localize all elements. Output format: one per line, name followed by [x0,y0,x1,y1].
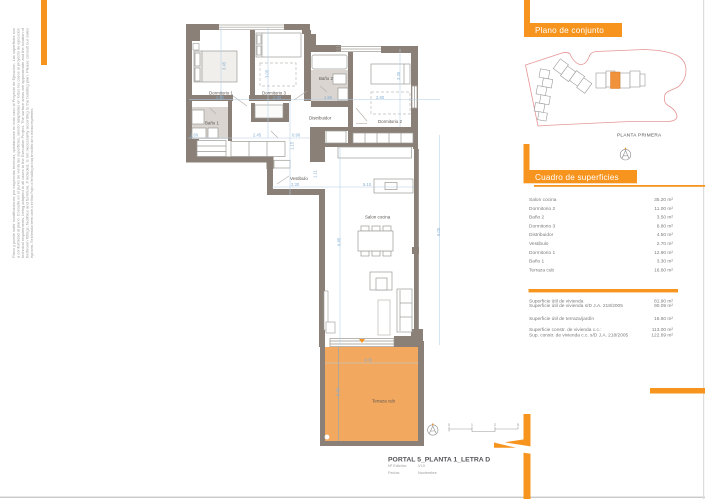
svg-text:2.45: 2.45 [253,133,262,138]
svg-text:1: 1 [471,423,473,427]
svg-text:6.85: 6.85 [337,237,342,246]
svg-text:Sup. constr. de vivienda c.c.: Sup. constr. de vivienda c.c. s/D J.A. 2… [529,333,629,339]
svg-text:Plano de conjunto: Plano de conjunto [535,26,604,35]
svg-text:3.50 m²: 3.50 m² [657,215,674,221]
svg-text:1.11: 1.11 [313,169,318,178]
svg-text:Vestibulo: Vestibulo [290,176,308,181]
svg-text:2.70 m²: 2.70 m² [657,241,674,247]
svg-text:5.80: 5.80 [336,387,341,396]
svg-text:90.09 m²: 90.09 m² [654,303,673,309]
svg-text:1.15: 1.15 [290,141,295,150]
svg-text:5.10: 5.10 [363,182,372,187]
svg-text:122.89 m²: 122.89 m² [651,333,673,339]
svg-text:legal norms. The information h: legal norms. The information herein come… [30,108,34,258]
svg-text:1.60: 1.60 [190,133,199,138]
svg-text:3.05: 3.05 [265,69,270,78]
svg-text:16.60 m²: 16.60 m² [654,267,673,273]
svg-text:Nº Edición:: Nº Edición: [388,463,407,468]
svg-text:16.60 m²: 16.60 m² [654,316,673,322]
svg-text:12.90 m²: 12.90 m² [654,250,673,256]
svg-text:Cuadro de superficies: Cuadro de superficies [535,173,619,182]
svg-text:PLANTA PRIMERA: PLANTA PRIMERA [617,133,662,138]
svg-text:Superficie útil de terraza/jar: Superficie útil de terraza/jardín [529,316,594,322]
svg-text:Noviembre: Noviembre [418,470,437,475]
svg-text:2.30: 2.30 [291,182,300,187]
svg-text:Fecha:: Fecha: [388,470,400,475]
svg-text:Terraza cub: Terraza cub [529,267,554,273]
svg-text:0: 0 [448,423,450,427]
svg-text:6.05: 6.05 [436,227,441,236]
svg-text:Dormitorio 1: Dormitorio 1 [529,250,555,256]
svg-text:Dormitorio 2: Dormitorio 2 [378,119,402,124]
svg-text:Distribuidor: Distribuidor [309,116,332,121]
svg-text:4.50 m²: 4.50 m² [657,232,674,238]
svg-text:2: 2 [494,423,496,427]
svg-text:Vestibulo: Vestibulo [529,241,549,247]
svg-text:8.80 m²: 8.80 m² [657,223,674,229]
svg-text:5: 5 [517,423,519,427]
svg-text:Superficie útil de vivienda s/: Superficie útil de vivienda s/D J.A. 218… [529,303,623,309]
svg-text:Baño 1: Baño 1 [205,121,219,126]
svg-text:Distribuidor: Distribuidor [529,232,554,238]
svg-text:Dormitorio 1: Dormitorio 1 [209,91,233,96]
svg-text:2.80: 2.80 [376,95,385,100]
svg-text:2.90: 2.90 [273,95,282,100]
svg-text:Dormitorio 3: Dormitorio 3 [529,223,555,229]
svg-text:bathroom fittings, facilities: bathroom fittings, facilities and furnit… [26,28,30,258]
svg-text:35.20 m²: 35.20 m² [654,197,673,203]
svg-text:3.30 m²: 3.30 m² [657,259,674,265]
svg-text:Salon cocina: Salon cocina [529,197,557,203]
svg-text:0.90: 0.90 [292,133,301,138]
svg-text:VI.0: VI.0 [418,463,426,468]
svg-text:Terraza cub: Terraza cub [372,399,395,404]
svg-text:Salon cocina: Salon cocina [365,215,391,220]
svg-text:Baño 2: Baño 2 [319,76,333,81]
svg-text:2.80: 2.80 [216,95,225,100]
svg-text:4.05: 4.05 [364,358,373,363]
svg-text:a conformidad al plano. Consul: a conformidad al plano. Consulte en el p… [17,28,21,258]
svg-text:1.85: 1.85 [324,95,333,100]
svg-text:Dormitorio 2: Dormitorio 2 [529,206,555,212]
svg-text:technical requirements, being: technical requirements, being adapted in… [21,28,25,258]
svg-text:Baño 1: Baño 1 [529,259,545,265]
svg-text:Dormitorio 3: Dormitorio 3 [262,91,286,96]
svg-text:3.45: 3.45 [222,61,227,70]
svg-text:11.00 m²: 11.00 m² [654,206,673,212]
svg-text:Baño 2: Baño 2 [529,215,545,221]
svg-text:3.35: 3.35 [396,71,401,80]
svg-text:Superficie constr. de vivienda: Superficie constr. de vivienda c.c.: [529,327,602,333]
svg-text:Plano y puede sufrir modificac: Plano y puede sufrir modificaciones por … [12,28,16,258]
svg-text:113.00 m²: 113.00 m² [652,327,674,333]
